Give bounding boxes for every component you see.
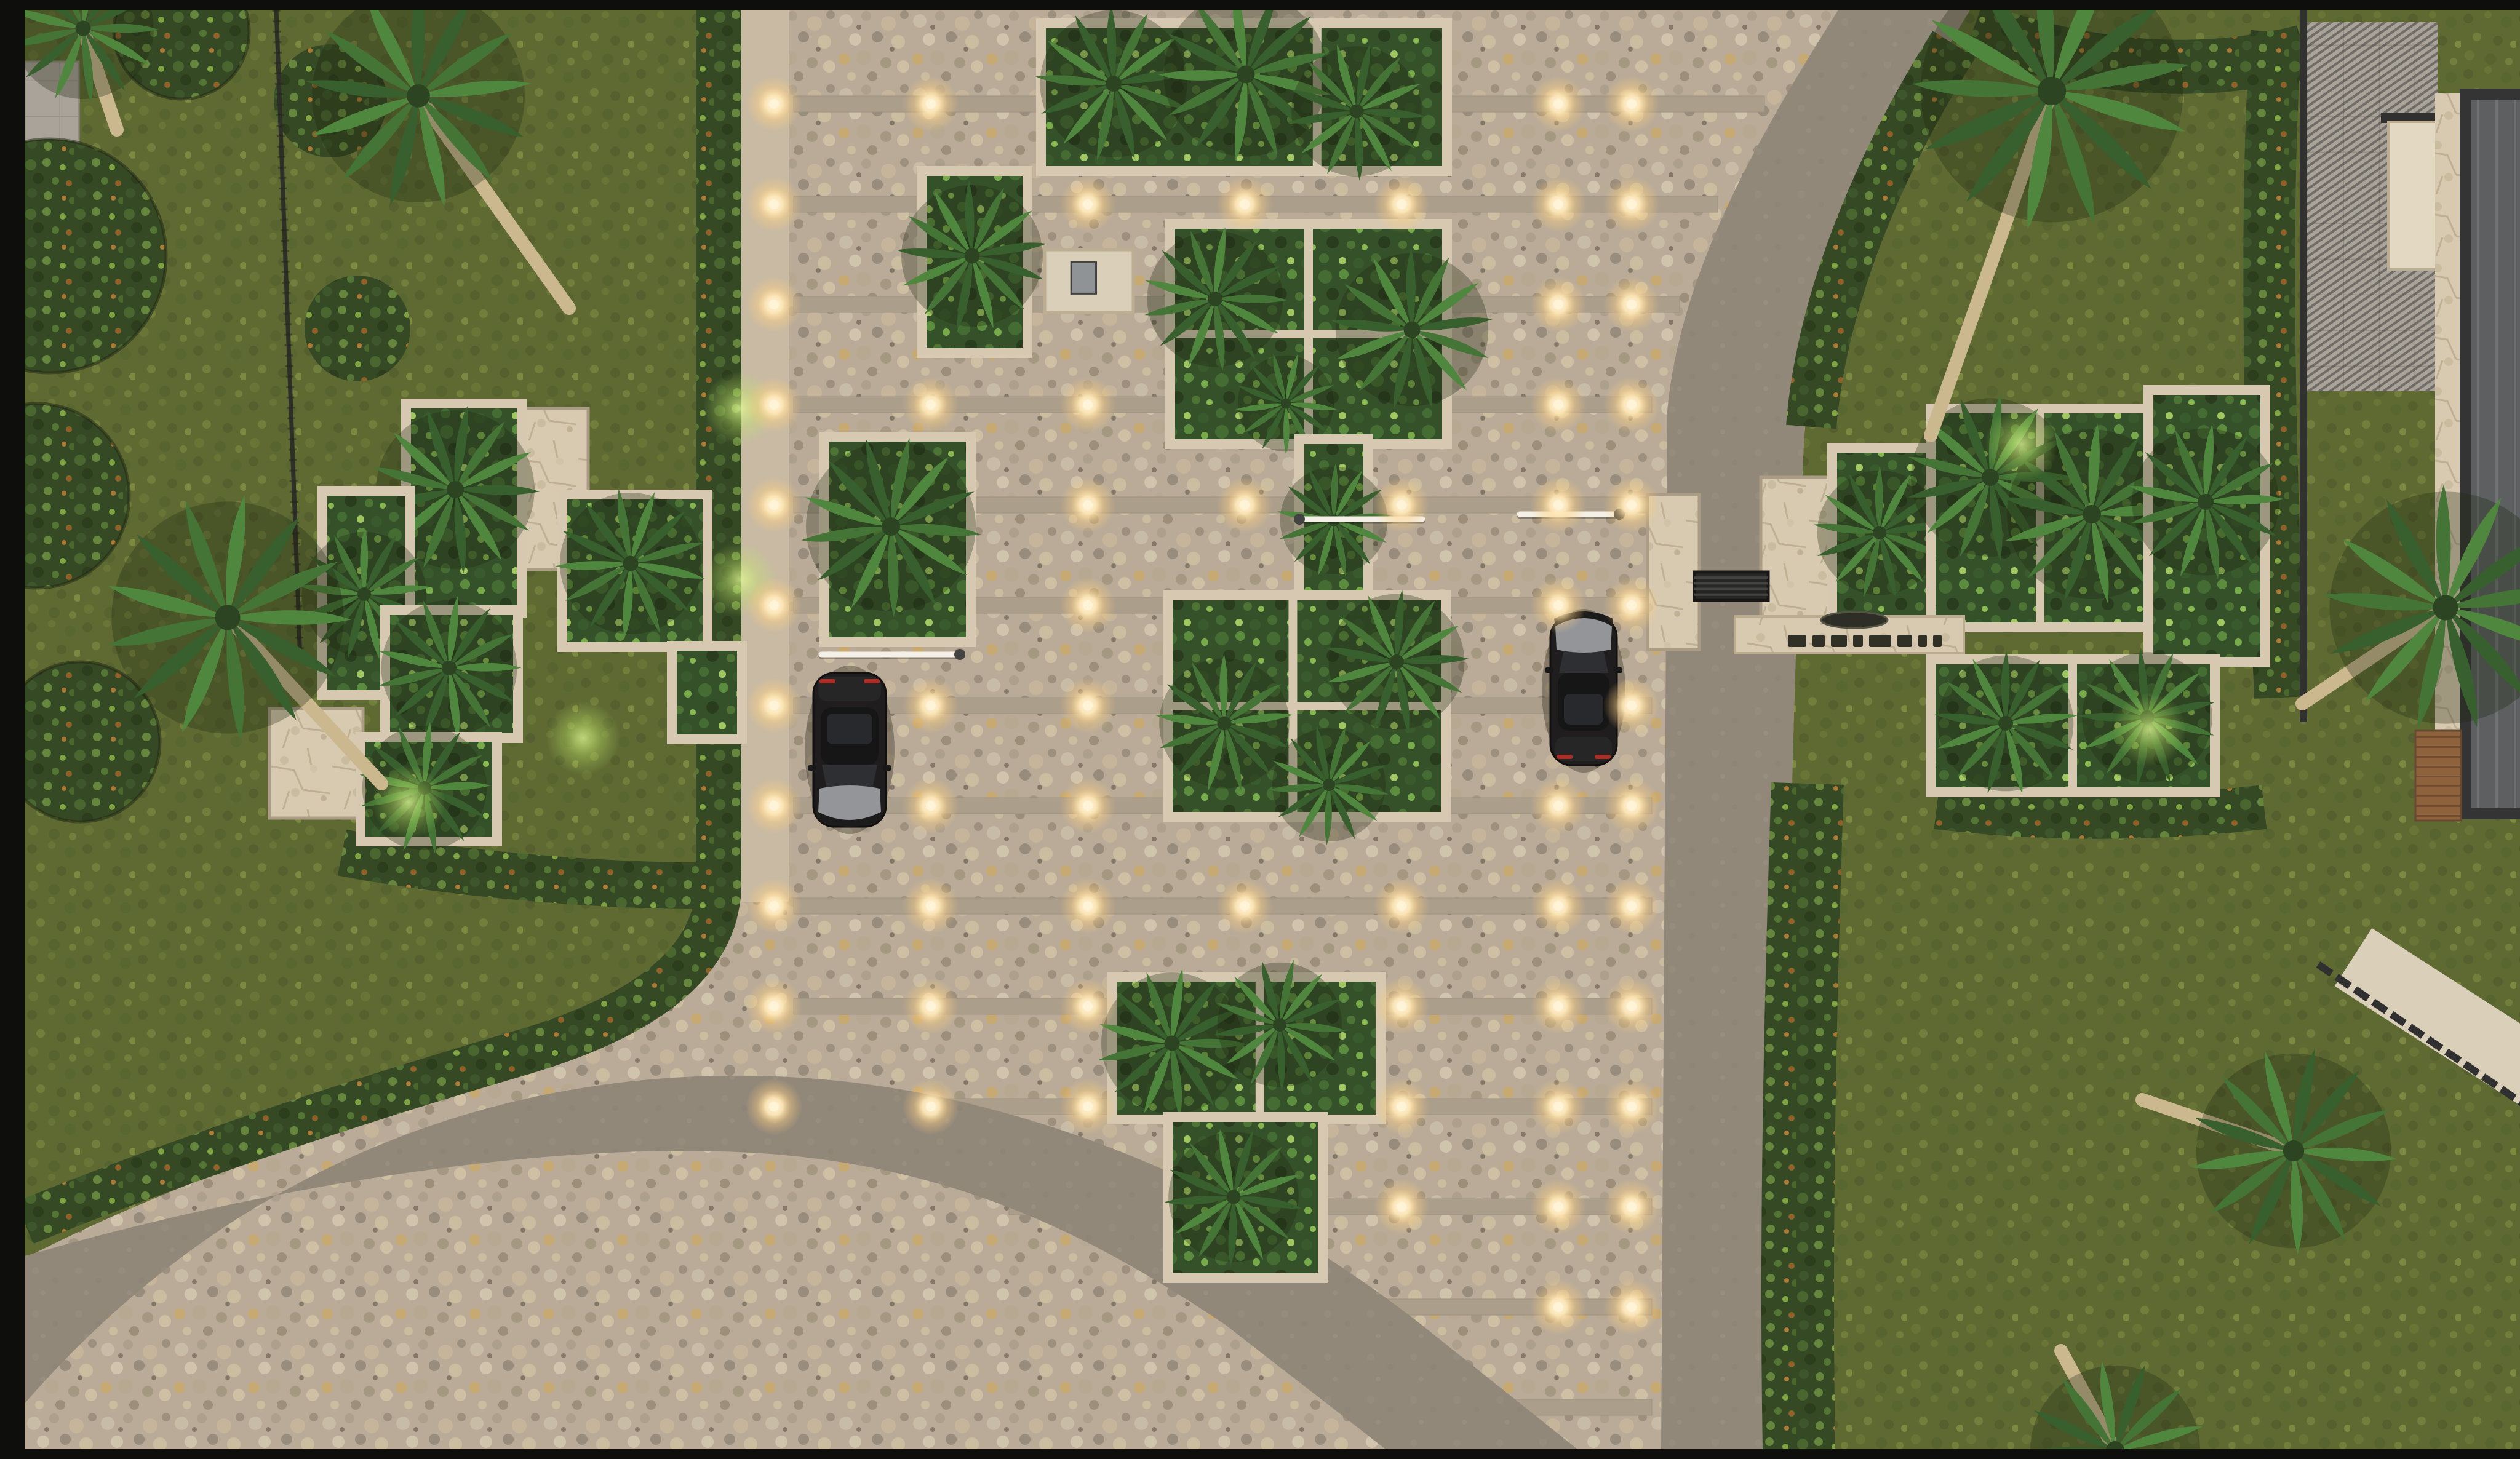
dusk-tint — [25, 10, 2520, 1449]
aerial-render: aerial-dusk-render-residential-entrance-… — [25, 10, 2520, 1449]
